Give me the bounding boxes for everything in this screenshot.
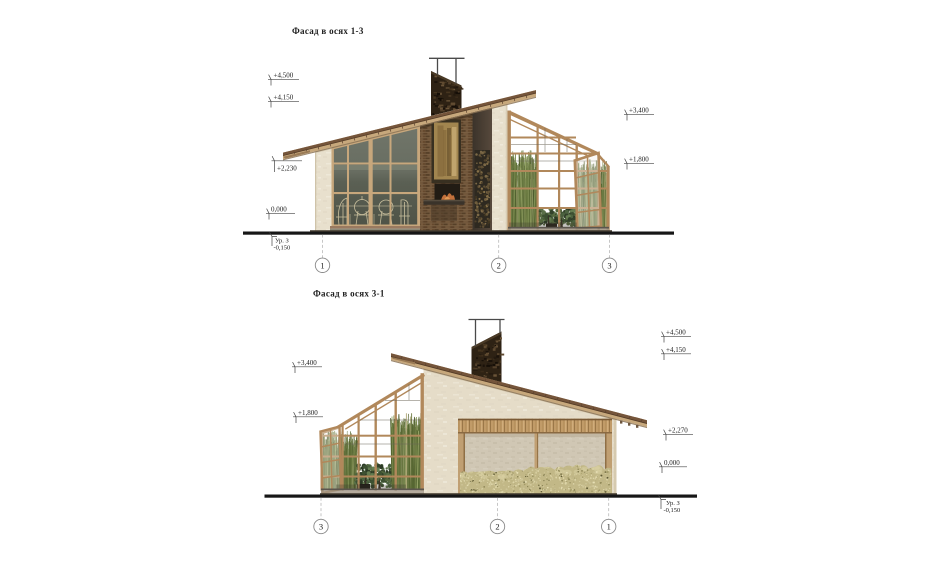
- svg-text:+2,230: +2,230: [277, 165, 297, 173]
- svg-text:Фасад в осях 1-3: Фасад в осях 1-3: [292, 26, 364, 36]
- svg-text:1: 1: [320, 260, 324, 270]
- svg-text:3: 3: [607, 260, 611, 270]
- svg-text:+4,500: +4,500: [274, 72, 294, 80]
- svg-text:1: 1: [607, 522, 611, 532]
- svg-text:2: 2: [495, 522, 499, 532]
- svg-text:-0,150: -0,150: [274, 245, 291, 252]
- svg-text:0,000: 0,000: [664, 459, 680, 467]
- svg-text:+3,400: +3,400: [297, 359, 317, 367]
- svg-text:Ур. З: Ур. З: [666, 500, 680, 507]
- svg-text:2: 2: [497, 260, 501, 270]
- svg-text:Фасад в осях 3-1: Фасад в осях 3-1: [313, 289, 385, 299]
- svg-text:+3,400: +3,400: [629, 107, 649, 115]
- svg-text:+4,500: +4,500: [666, 329, 686, 337]
- svg-text:+2,270: +2,270: [668, 427, 688, 435]
- svg-text:+1,800: +1,800: [298, 409, 318, 417]
- svg-text:3: 3: [319, 522, 323, 532]
- svg-text:Ур. З: Ур. З: [275, 238, 289, 245]
- svg-text:-0,150: -0,150: [664, 507, 681, 514]
- svg-text:+4,150: +4,150: [274, 94, 294, 102]
- svg-text:+1,800: +1,800: [629, 156, 649, 164]
- svg-text:+4,150: +4,150: [666, 346, 686, 354]
- svg-text:0,000: 0,000: [271, 206, 287, 214]
